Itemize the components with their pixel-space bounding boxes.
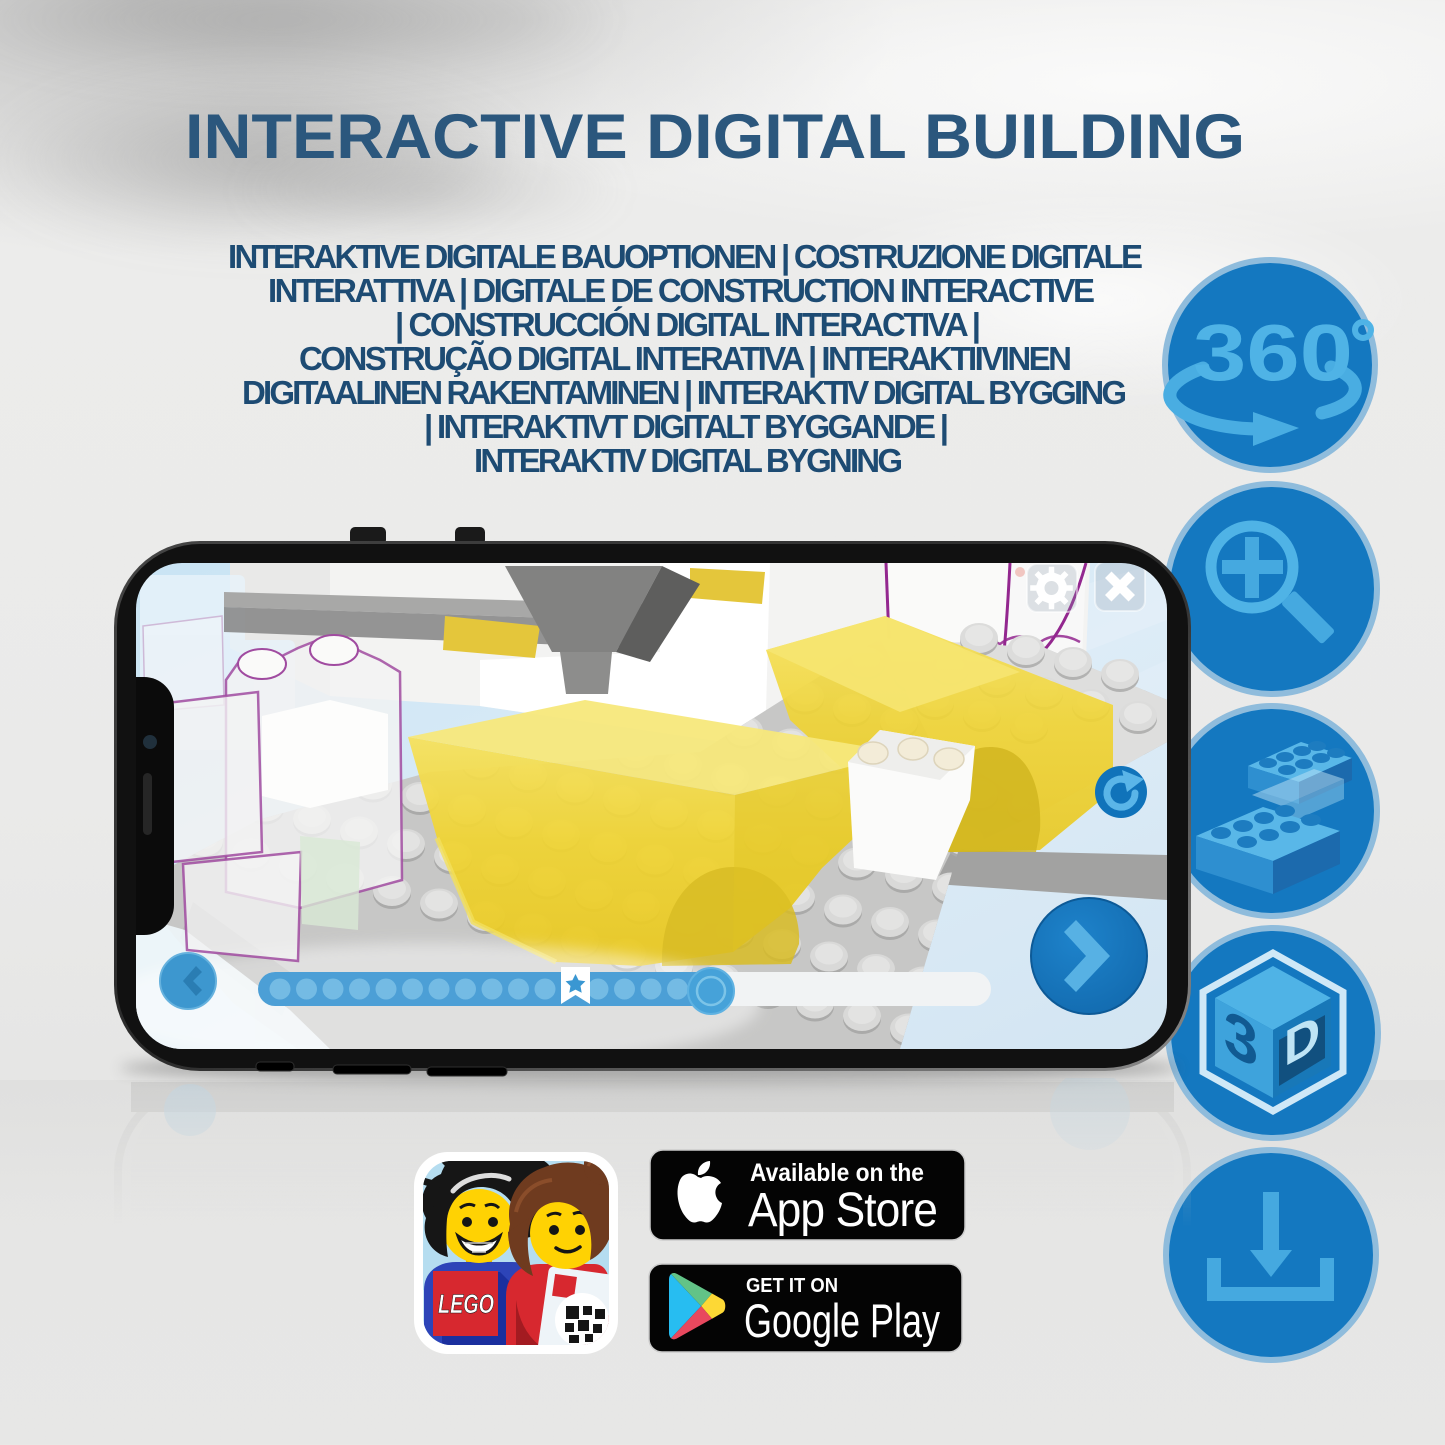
svg-text:Available on the: Available on the: [750, 1159, 924, 1187]
svg-text:CONSTRUÇÃO DIGITAL INTERATIVA: CONSTRUÇÃO DIGITAL INTERATIVA | INTERAKT…: [299, 340, 1072, 377]
svg-text:INTERACTIVE DIGITAL BUILDING: INTERACTIVE DIGITAL BUILDING: [185, 102, 1245, 172]
svg-text:DIGITAALINEN RAKENTAMINEN | IN: DIGITAALINEN RAKENTAMINEN | INTERAKTIV D…: [242, 374, 1127, 411]
svg-text:360: 360: [1193, 308, 1353, 397]
svg-text:App Store: App Store: [748, 1184, 937, 1237]
svg-text:LEGO: LEGO: [438, 1289, 494, 1319]
svg-text:| INTERAKTIVT DIGITALT BYGGAND: | INTERAKTIVT DIGITALT BYGGANDE |: [424, 408, 949, 445]
svg-text:INTERAKTIV DIGITAL BYGNING: INTERAKTIV DIGITAL BYGNING: [474, 442, 903, 479]
svg-text:Google Play: Google Play: [744, 1294, 940, 1347]
svg-text:INTERAKTIVE DIGITALE BAUOPTION: INTERAKTIVE DIGITALE BAUOPTIONEN | COSTR…: [228, 238, 1143, 275]
svg-text:| CONSTRUCCIÓN DIGITAL INTERAC: | CONSTRUCCIÓN DIGITAL INTERACTIVA |: [395, 306, 981, 343]
svg-text:INTERATTIVA | DIGITALE DE CONS: INTERATTIVA | DIGITALE DE CONSTRUCTION I…: [268, 272, 1095, 309]
